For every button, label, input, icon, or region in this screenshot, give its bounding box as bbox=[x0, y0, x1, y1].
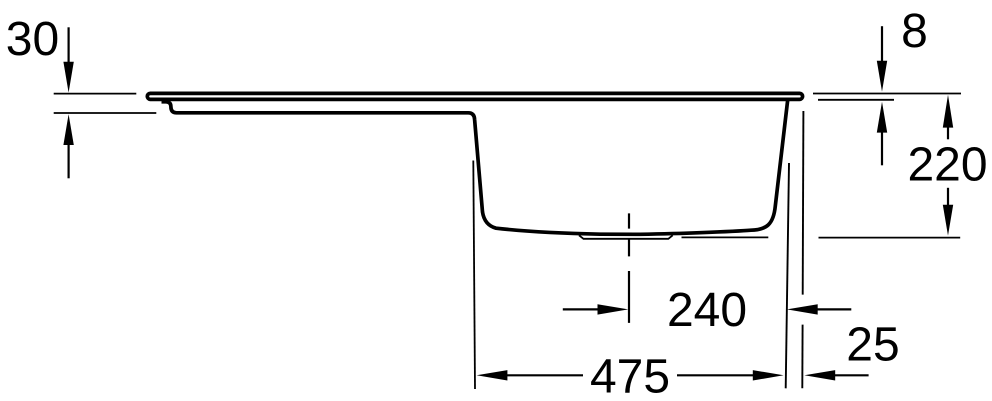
svg-text:25: 25 bbox=[846, 319, 899, 372]
svg-text:30: 30 bbox=[6, 13, 59, 66]
svg-text:475: 475 bbox=[590, 351, 670, 401]
svg-text:220: 220 bbox=[907, 139, 987, 192]
svg-text:8: 8 bbox=[901, 5, 928, 58]
svg-text:240: 240 bbox=[667, 284, 747, 337]
